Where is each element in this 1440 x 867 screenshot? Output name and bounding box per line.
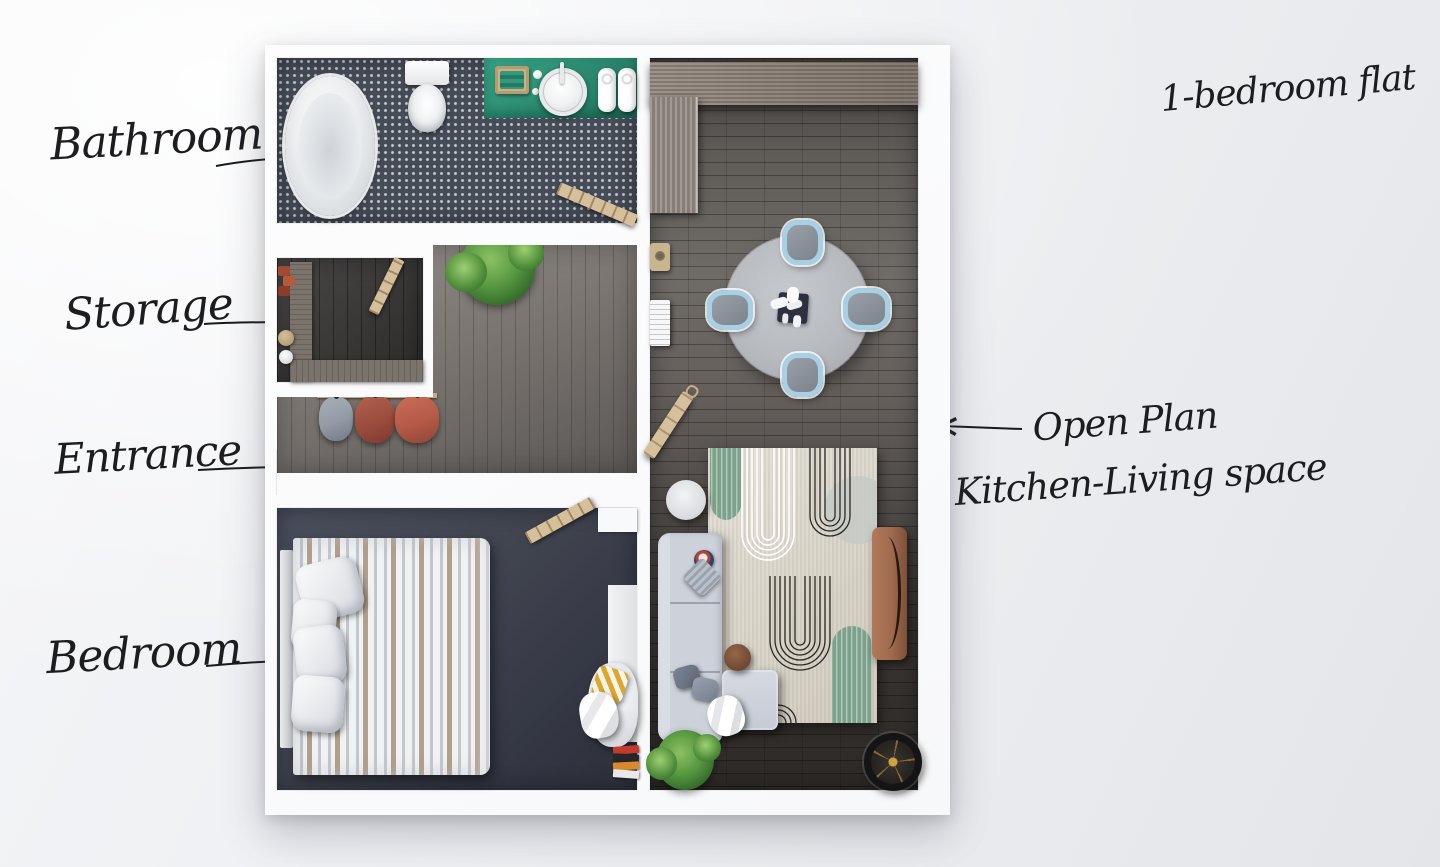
storage-room bbox=[277, 258, 423, 382]
dining-chair bbox=[782, 353, 823, 397]
side-table bbox=[666, 480, 706, 520]
tv-console bbox=[872, 527, 907, 660]
rolled-towel bbox=[618, 68, 636, 112]
vessel-sink bbox=[539, 68, 587, 116]
magazine bbox=[613, 769, 639, 779]
open-plan-label: Open Plan Kitchen-Living space bbox=[948, 380, 1305, 523]
coat bbox=[395, 396, 439, 443]
coat bbox=[355, 396, 395, 443]
soap bbox=[533, 70, 542, 79]
dining-chair bbox=[782, 220, 823, 265]
wooden-bench bbox=[643, 390, 694, 459]
bathroom-room bbox=[277, 58, 637, 223]
bedroom-room bbox=[277, 508, 637, 790]
coat bbox=[319, 397, 353, 441]
rolled-towel bbox=[598, 68, 616, 112]
sofa-cushion-seam bbox=[670, 602, 720, 604]
bathroom-label: Bathroom bbox=[49, 108, 264, 170]
basket bbox=[278, 330, 294, 346]
floor-plan bbox=[265, 45, 950, 815]
toilet-tank bbox=[405, 61, 449, 85]
pillow bbox=[290, 674, 346, 733]
storage-box bbox=[278, 286, 290, 296]
kitchen-cabinet bbox=[650, 97, 698, 213]
bedroom-label: Bedroom bbox=[45, 623, 243, 684]
bathtub bbox=[285, 76, 375, 216]
soap bbox=[532, 88, 539, 95]
towel-tray bbox=[495, 66, 529, 94]
speaker-box bbox=[650, 243, 670, 271]
ladder-shelf bbox=[524, 497, 595, 544]
book-stack bbox=[650, 300, 670, 346]
entry-door-opening bbox=[265, 450, 277, 495]
storage-box bbox=[283, 276, 295, 286]
page-title: 1-bedroom flat bbox=[1159, 57, 1417, 120]
dining-chair bbox=[707, 290, 753, 330]
entrance-label: Entrance bbox=[53, 425, 242, 484]
table-centerpiece bbox=[777, 292, 809, 324]
floor-plan-poster: Bathroom Storage Entrance Bedroom 1-bedr… bbox=[0, 0, 1440, 867]
dining-chair bbox=[843, 288, 890, 330]
step-ladder bbox=[368, 257, 404, 316]
toilet bbox=[408, 84, 446, 132]
storage-shelf bbox=[290, 360, 423, 382]
towel-ladder bbox=[556, 182, 638, 227]
storage-label: Storage bbox=[62, 278, 234, 341]
magazine-stack bbox=[613, 746, 641, 780]
potted-plant bbox=[656, 730, 714, 790]
potted-plant bbox=[459, 231, 535, 305]
pouf bbox=[724, 644, 751, 671]
bedroom-door bbox=[598, 508, 637, 532]
storage-box bbox=[278, 266, 290, 276]
kitchen-living-room bbox=[650, 58, 918, 790]
bin bbox=[279, 350, 293, 364]
floor-lamp bbox=[864, 733, 922, 791]
